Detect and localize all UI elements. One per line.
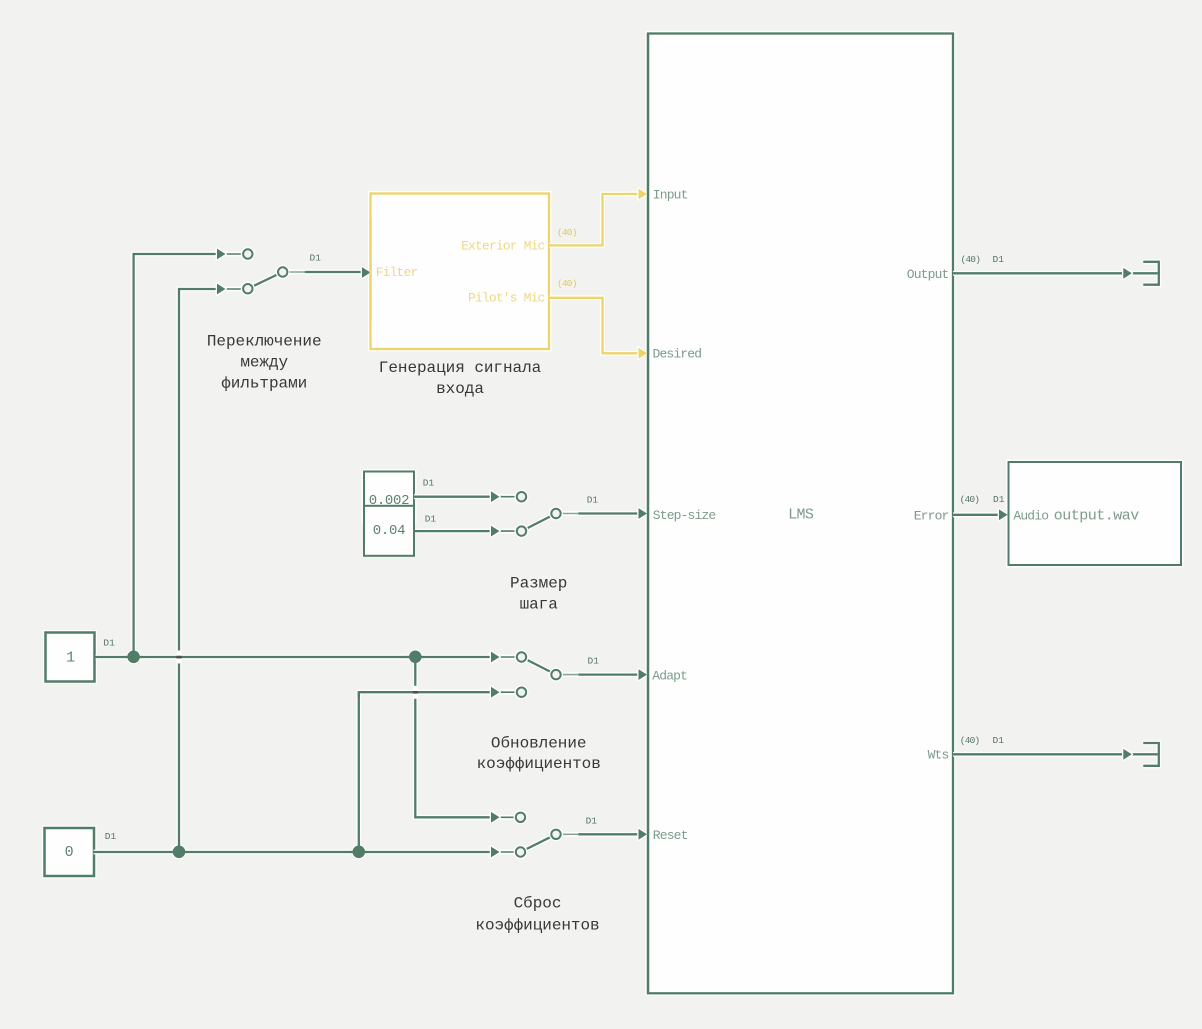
svg-text:коэффициентов: коэффициентов <box>477 755 601 773</box>
svg-text:1: 1 <box>66 649 75 666</box>
svg-text:Переключение: Переключение <box>207 333 322 351</box>
svg-text:D1: D1 <box>586 815 598 826</box>
svg-text:Audiooutput.wav: Audiooutput.wav <box>1013 507 1139 524</box>
svg-text:Input: Input <box>653 187 688 202</box>
svg-text:(40): (40) <box>557 278 577 289</box>
svg-text:D1: D1 <box>310 253 322 264</box>
svg-text:0: 0 <box>65 844 74 861</box>
svg-text:(40): (40) <box>557 227 577 238</box>
svg-text:D1: D1 <box>993 735 1005 746</box>
svg-text:D1: D1 <box>993 254 1005 265</box>
svg-text:Error: Error <box>914 509 949 524</box>
svg-text:D1: D1 <box>103 638 115 649</box>
svg-text:Сброс: Сброс <box>514 895 562 913</box>
svg-text:Step-size: Step-size <box>653 508 716 523</box>
svg-text:Wts: Wts <box>928 748 949 763</box>
svg-text:между: между <box>240 354 288 372</box>
svg-text:D1: D1 <box>425 513 437 524</box>
svg-text:D1: D1 <box>587 495 599 506</box>
svg-text:коэффициентов: коэффициентов <box>475 917 599 935</box>
svg-text:(40): (40) <box>961 254 981 265</box>
svg-text:Pilot's Mic: Pilot's Mic <box>468 291 545 306</box>
svg-text:LMS: LMS <box>788 507 814 524</box>
svg-text:Обновление: Обновление <box>491 735 587 753</box>
svg-text:Filter: Filter <box>376 265 418 280</box>
svg-text:Reset: Reset <box>653 828 688 843</box>
svg-text:Desired: Desired <box>653 346 702 361</box>
svg-text:D1: D1 <box>105 831 117 842</box>
svg-text:шага: шага <box>520 596 559 614</box>
svg-text:0.04: 0.04 <box>373 523 405 539</box>
svg-text:D1: D1 <box>423 477 435 488</box>
svg-text:(40): (40) <box>960 735 980 746</box>
svg-text:D1: D1 <box>588 656 600 667</box>
svg-text:(40): (40) <box>960 494 980 505</box>
svg-text:Генерация сигнала: Генерация сигнала <box>379 359 542 377</box>
svg-text:Adapt: Adapt <box>652 668 687 683</box>
svg-text:D1: D1 <box>993 494 1005 505</box>
svg-text:Exterior Mic: Exterior Mic <box>461 238 544 253</box>
svg-text:Размер: Размер <box>510 575 567 593</box>
svg-text:фильтрами: фильтрами <box>221 375 307 393</box>
svg-text:0.002: 0.002 <box>369 493 410 509</box>
svg-text:входа: входа <box>436 380 484 398</box>
svg-text:Output: Output <box>907 267 949 282</box>
